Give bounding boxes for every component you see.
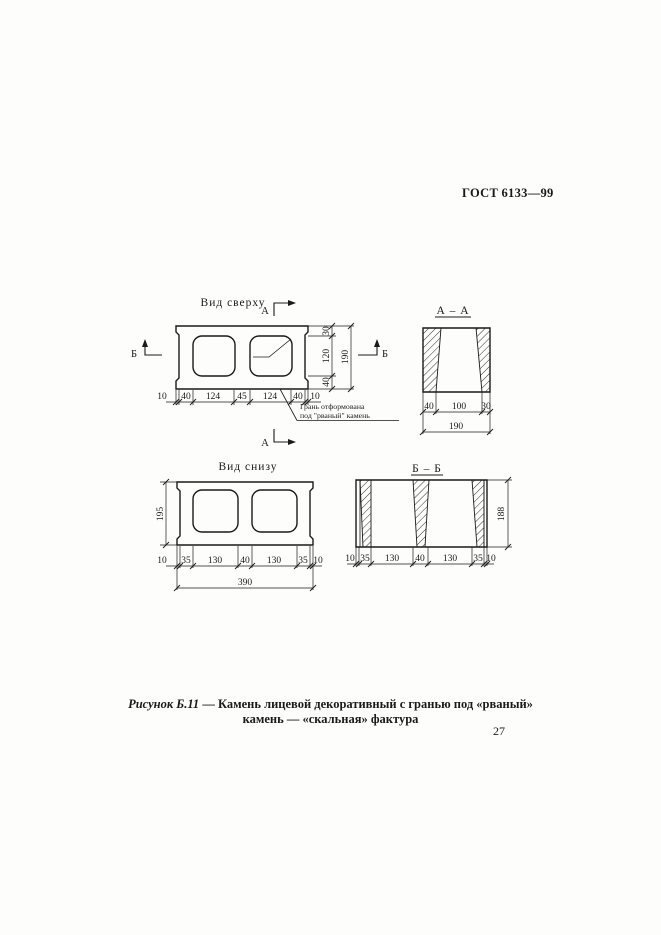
figure-caption-line2: камень — «скальная» фактура: [243, 712, 419, 726]
dim-label: 195: [156, 507, 166, 522]
note-line1: Грань отформована: [300, 402, 365, 411]
section-bb-bottom-dims: 10 35 130 40 130 35 10: [345, 547, 496, 567]
dim-label: 40: [424, 402, 434, 412]
document-page: ГОСТ 6133—99 Вид сверху А: [0, 0, 661, 935]
dim-label: 130: [267, 556, 282, 566]
dim-label: 45: [237, 392, 247, 402]
bottom-view-title: Вид снизу: [218, 461, 277, 473]
bottom-view-left-dim: 195: [156, 479, 177, 548]
dim-label: 40: [415, 554, 425, 564]
dim-label: 35: [298, 556, 308, 566]
section-bb-right-dim: 188: [487, 477, 512, 550]
dim-label: 30: [322, 326, 332, 336]
dim-label: 130: [208, 556, 223, 566]
section-aa-view: А – А 40 100 30 190: [420, 305, 493, 435]
section-mark-a-top: А: [261, 300, 296, 317]
bottom-view-bottom-dims: 10 35 130 40 130 35 10 390: [157, 546, 323, 591]
page-number: 27: [493, 724, 505, 739]
dim-label: 10: [313, 556, 323, 566]
dim-label: 10: [157, 556, 167, 566]
dim-label: 35: [181, 556, 191, 566]
dim-label: 124: [206, 392, 221, 402]
top-view-bottom-dims: 10 40 124 45 124 40 10: [157, 390, 321, 405]
top-view: Вид сверху А А Б: [131, 297, 399, 449]
arrow-right-icon: [288, 439, 296, 445]
dim-label: 188: [497, 507, 507, 522]
dim-label: 100: [452, 402, 467, 412]
top-view-right-dims: 30 120 40 190: [308, 323, 354, 392]
dim-label: 40: [181, 392, 191, 402]
dim-label: 10: [345, 554, 355, 564]
dim-label: 10: [157, 392, 167, 402]
arrow-up-icon: [142, 339, 148, 347]
section-aa-dims: 40 100 30 190: [420, 392, 493, 435]
technical-drawing: Вид сверху А А Б: [0, 0, 661, 935]
section-letter: Б: [382, 349, 388, 360]
section-mark-b-right: Б: [358, 339, 388, 360]
top-view-hole-right: [250, 336, 292, 376]
dim-label: 40: [240, 556, 250, 566]
dim-label: 30: [481, 402, 491, 412]
dim-label: 124: [263, 392, 278, 402]
figure-number: Рисунок Б.11: [128, 697, 199, 711]
dim-label: 120: [322, 349, 332, 364]
section-letter: А: [261, 438, 269, 449]
section-aa-title: А – А: [436, 305, 469, 317]
arrow-up-icon: [374, 339, 380, 347]
dim-label: 35: [360, 554, 370, 564]
arrow-right-icon: [288, 300, 296, 306]
bottom-view-hole-right: [252, 490, 297, 532]
top-view-hole-left: [193, 336, 235, 376]
dim-label: 10: [310, 392, 320, 402]
section-mark-a-bottom: А: [261, 429, 296, 449]
top-view-title: Вид сверху: [201, 297, 266, 309]
section-mark-b-left: Б: [131, 339, 162, 360]
bottom-view-hole-left: [193, 490, 238, 532]
dim-label: 35: [473, 554, 483, 564]
dim-label: 190: [341, 350, 351, 365]
dim-label: 130: [385, 554, 400, 564]
note-line2: под "рваный" камень: [300, 411, 370, 420]
section-letter: Б: [131, 349, 137, 360]
bottom-view: Вид снизу 195 10 35 130 40 130: [156, 461, 323, 591]
dim-label: 40: [322, 377, 332, 387]
figure-caption: Рисунок Б.11 — Камень лицевой декоративн…: [80, 697, 581, 727]
figure-caption-text: — Камень лицевой декоративный с гранью п…: [202, 697, 533, 711]
section-bb-view: Б – Б 188 10 35 130 40: [345, 463, 512, 567]
figure-caption-line1: Рисунок Б.11 — Камень лицевой декоративн…: [128, 697, 533, 711]
dim-label: 130: [443, 554, 458, 564]
section-bb-title: Б – Б: [412, 463, 442, 475]
dim-label: 190: [449, 422, 464, 432]
dim-label: 40: [293, 392, 303, 402]
dim-label: 390: [238, 578, 253, 588]
section-letter: А: [261, 306, 269, 317]
dim-label: 10: [486, 554, 496, 564]
